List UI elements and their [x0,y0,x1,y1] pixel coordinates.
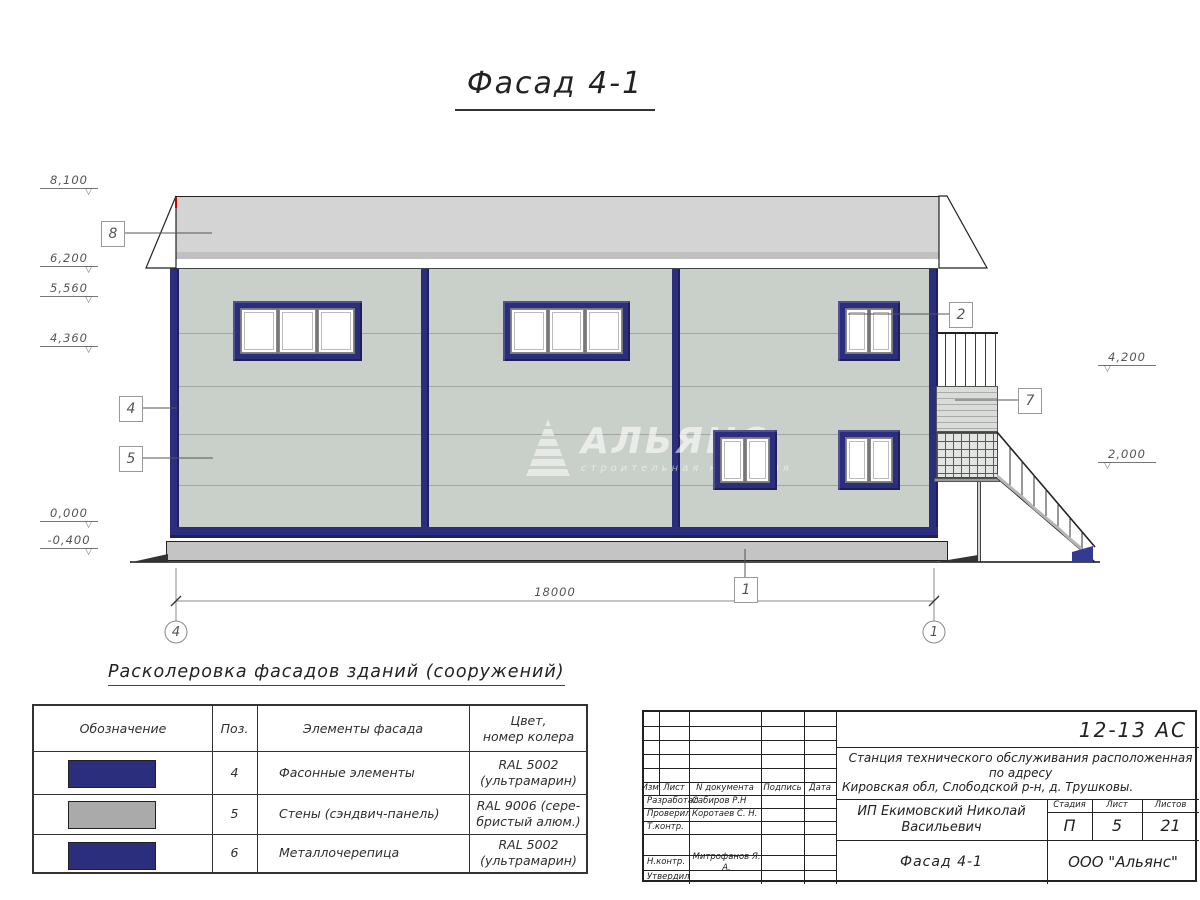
stair-landing-railing [936,332,998,389]
document-number: 12-13 АС [836,712,1199,747]
base-trim-band [170,527,938,538]
axis-bubble-1: 1 [922,620,946,644]
window-2pane [713,430,777,490]
legend-col-color: Цвет, номер колера [469,706,588,751]
alliance-pyramid-logo-icon [525,419,571,479]
level-arrow-icon: ▽ [40,297,98,304]
level-mark: 4,360▽ [40,331,98,354]
sheet-label: Лист [1092,799,1142,812]
swatch-ral9006 [68,801,156,829]
legend-row-pos: 6 [212,834,257,872]
page-title: Фасад 4-1 [455,66,655,111]
legend-row-element: Фасонные элементы [257,751,491,794]
facade-wall: АЛЬЯНС строительная компания [170,268,938,538]
level-mark: 0,000▽ [40,506,98,529]
sheets-value: 21 [1142,812,1199,840]
stair-landing [936,386,998,432]
callout-plinth: 1 [734,577,758,603]
panel-joint-line [170,386,938,387]
sign-name: Сабиров Р.Н [689,795,761,808]
sign-name: Коротаев С. Н. [689,808,761,821]
corner-trim-left [170,269,179,532]
sign-role: Разработал [644,795,689,808]
level-mark: 8,100▽ [40,173,98,196]
stage-label: Стадия [1047,799,1092,812]
legend-row-element: Стены (сэндвич-панель) [257,794,491,834]
panel-joint-line [170,434,938,435]
sheets-label: Листов [1142,799,1199,812]
axis-bubble-4: 4 [164,620,188,644]
stair-landing-edge [934,478,1000,482]
rev-doc-label: N документа [689,782,761,795]
legend-row-pos: 5 [212,794,257,834]
sign-role: Проверил [644,808,689,821]
panel-joint-line [170,485,938,486]
company-name: ООО "Альянс" [1047,840,1199,884]
legend-row-element: Металлочерепица [257,834,491,872]
level-arrow-icon: ▽ [40,549,98,556]
level-mark: 2,000▽ [1098,447,1156,470]
stair-support-post [977,482,981,562]
vertical-trim [421,269,429,532]
callout-corner: 4 [119,396,143,422]
drawing-sheet: Фасад 4-1 АЛЬЯНС строительная компания [0,0,1200,900]
level-arrow-icon: ▽ [40,267,98,274]
title-block: Изм. Лист N документа Подпись Дата Разра… [642,710,1197,882]
callout-roof: 8 [101,221,125,247]
client-name: ИП Екимовский Николай Васильевич [836,799,1047,840]
sign-role: Утвердил [644,870,689,884]
vertical-trim [672,269,680,532]
level-mark: -0,400▽ [40,533,98,556]
sheet-title: Фасад 4-1 [836,840,1047,884]
legend-col-designation: Обозначение [34,706,212,751]
callout-wall: 5 [119,446,143,472]
roof-band [175,196,940,259]
window-2pane [838,301,900,361]
sign-role: Н.контр. [644,855,689,870]
stair-lower-railing-grid [936,432,998,478]
level-arrow-icon: ▽ [40,522,98,529]
rev-date-label: Дата [804,782,836,795]
rev-list-label: Лист [659,782,689,795]
legend-row-color: RAL 9006 (сере- бристый алюм.) [469,794,588,834]
sign-name: Митрофанов Я. А. [689,855,761,870]
callout-window: 2 [949,302,973,328]
dimension-label: 18000 [515,585,595,599]
legend-heading: Расколеровка фасадов зданий (сооружений) [108,662,565,686]
sheet-value: 5 [1092,812,1142,840]
level-mark: 6,200▽ [40,251,98,274]
sign-role: Т.контр. [644,821,689,834]
level-arrow-icon: ▽ [1098,366,1156,373]
level-arrow-icon: ▽ [40,189,98,196]
project-description: Станция технического обслуживания распол… [836,747,1199,799]
rev-izm-label: Изм. [644,782,659,795]
legend-row-color: RAL 5002 (ультрамарин) [469,834,588,872]
window-3pane [233,301,362,361]
window-2pane [838,430,900,490]
legend-table: Обозначение Поз. Элементы фасада Цвет, н… [32,704,588,874]
level-mark: 4,200▽ [1098,350,1156,373]
callout-stair: 7 [1018,388,1042,414]
stage-value: П [1047,812,1092,840]
legend-col-pos: Поз. [212,706,257,751]
swatch-ral5002 [68,760,156,788]
level-arrow-icon: ▽ [40,347,98,354]
window-3pane [503,301,630,361]
level-mark: 5,560▽ [40,281,98,304]
legend-row-pos: 4 [212,751,257,794]
level-arrow-icon: ▽ [1098,463,1156,470]
legend-row-color: RAL 5002 (ультрамарин) [469,751,588,794]
rev-sign-label: Подпись [761,782,804,795]
swatch-ral5002 [68,842,156,870]
legend-col-element: Элементы фасада [257,706,469,751]
plinth [166,541,948,561]
